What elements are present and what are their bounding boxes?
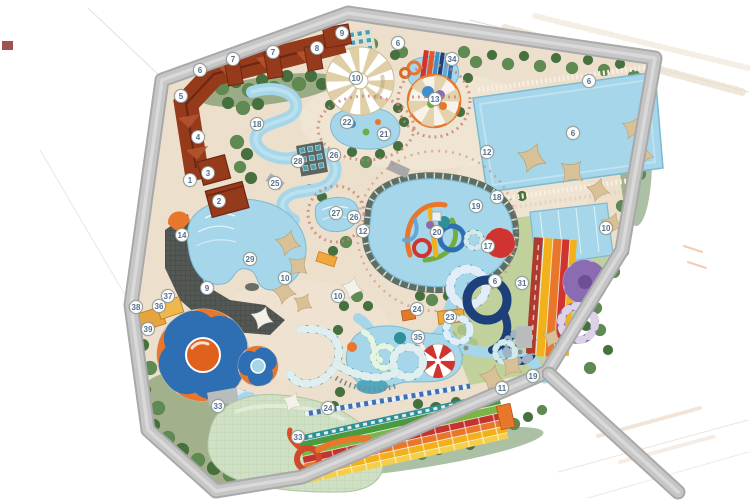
kiosk-24 (401, 309, 416, 321)
exit-road (549, 374, 678, 492)
toddler-pool-27 (315, 197, 358, 231)
tower-platform (516, 326, 532, 348)
checker-tower (485, 228, 515, 258)
site-key-mark (2, 41, 13, 50)
funnel-ring (238, 346, 278, 386)
park-map: 1234567789106341366122221182826252726121… (0, 0, 750, 500)
spiral-structure-10 (326, 47, 394, 115)
tornado-funnel (157, 309, 249, 401)
park-map-drawing (0, 0, 750, 500)
